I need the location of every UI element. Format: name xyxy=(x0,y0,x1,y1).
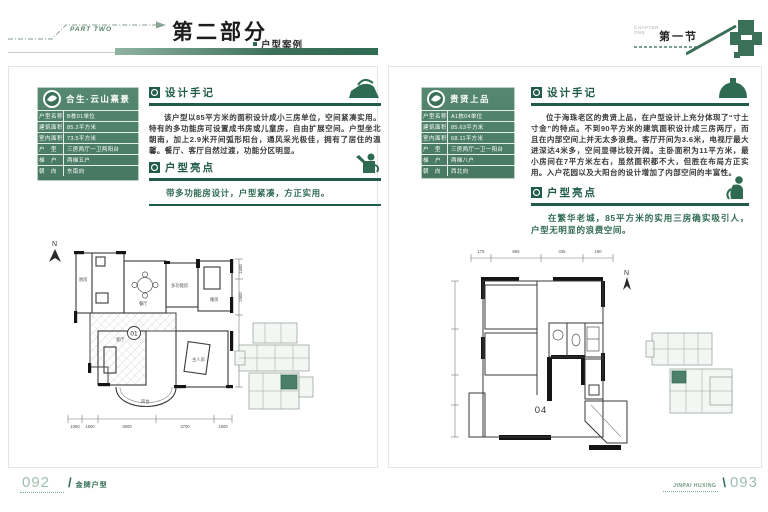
dimension-labels: 1050 1500 3600 3700 1500 xyxy=(70,424,228,429)
floor-plan-left: N xyxy=(46,235,246,431)
project-field-row: 户型名称 A1栋04单位 xyxy=(421,110,515,121)
unit-number: 04 xyxy=(535,405,548,416)
key-plan-highlight-unit xyxy=(672,371,686,383)
design-notes-text: 位于海珠老区的贵贤上品，在户型设计上充分体现了“寸土寸金”的特点。不到90平方米… xyxy=(531,112,749,178)
project-header: 贵贤上品 xyxy=(421,87,515,110)
room-label: 厨房 xyxy=(79,276,88,283)
design-notes-section: 设计手记 该户型以85平方米的面积设计成小三房单位，空间紧凑实用。特有的多功能房… xyxy=(149,85,381,156)
highlights-section: 户型亮点 在繁华老城，85平方米的实用三房确实吸引人，户型无明显的浪费空间。 xyxy=(531,185,749,236)
project-field-row: 朝 向 东南向 xyxy=(37,165,139,176)
footer-left: 092 / 金牌户型 xyxy=(20,474,108,493)
project-field-row: 户 型 三房两厅一卫一阳台 xyxy=(421,143,515,154)
dimension-labels: 175 855 335 190 xyxy=(477,249,602,254)
project-field-row: 建筑面积 85.63平方米 xyxy=(421,121,515,132)
room-label: 客厅 xyxy=(116,336,125,343)
project-name: 贵贤上品 xyxy=(450,93,490,105)
project-field-row: 建筑面积 85.2平方米 xyxy=(37,121,139,132)
left-page: 合生·云山熹景 户型名称 B栋01单位 建筑面积 85.2平方米 室内面积 73… xyxy=(8,66,378,468)
design-notes-title: 设计手记 xyxy=(165,85,215,100)
design-notes-text: 该户型以85平方米的面积设计成小三房单位，空间紧凑实用。特有的多功能房可设置成书… xyxy=(149,112,381,156)
project-field-row: 梯 户 两梯五户 xyxy=(37,154,139,165)
highlights-title: 户型亮点 xyxy=(165,160,215,175)
key-plan-left xyxy=(233,321,315,413)
room-label: 阳台 xyxy=(141,398,150,405)
highlights-title: 户型亮点 xyxy=(547,185,597,200)
house-icon xyxy=(686,14,762,58)
section-rule xyxy=(531,103,749,106)
highlights-text: 在繁华老城，85平方米的实用三房确实吸引人，户型无明显的浪费空间。 xyxy=(531,212,749,236)
svg-text:3700: 3700 xyxy=(180,424,190,429)
project-field-row: 室内面积 73.5平方米 xyxy=(37,132,139,143)
section-eyebrow: CHAPTER ONE xyxy=(634,25,659,35)
svg-text:3600: 3600 xyxy=(122,424,132,429)
page-number: 093 xyxy=(730,474,758,491)
svg-text:175: 175 xyxy=(477,249,485,254)
badge-icon xyxy=(149,162,160,173)
room-label: 餐厅 xyxy=(139,300,148,307)
svg-text:855: 855 xyxy=(512,249,520,254)
section-rule xyxy=(149,178,381,181)
footer-slash: / xyxy=(68,475,72,490)
unit-number: 01 xyxy=(130,331,138,338)
badge-icon xyxy=(531,187,542,198)
project-field-row: 室内面积 68.11平方米 xyxy=(421,132,515,143)
project-field-row: 户型名称 B栋01单位 xyxy=(37,110,139,121)
design-notes-section: 设计手记 位于海珠老区的贵贤上品，在户型设计上充分体现了“寸土寸金”的特点。不到… xyxy=(531,85,749,178)
page-number: 092 xyxy=(20,474,64,493)
svg-text:335: 335 xyxy=(558,249,566,254)
pot-icon xyxy=(717,76,749,100)
footer-slash: \ xyxy=(722,475,726,490)
compass-icon: N xyxy=(49,241,61,262)
right-page: 贵贤上品 户型名称 A1栋04单位 建筑面积 85.63平方米 室内面积 68.… xyxy=(388,66,762,468)
key-plan-right xyxy=(644,327,739,422)
compass-icon: N xyxy=(623,270,631,290)
svg-text:1500: 1500 xyxy=(85,424,95,429)
svg-text:N: N xyxy=(624,270,629,277)
svg-text:2600: 2600 xyxy=(238,292,243,302)
part-label: PART TWO xyxy=(70,26,112,33)
project-header: 合生·云山熹景 xyxy=(37,87,139,110)
watering-can-icon xyxy=(355,151,381,177)
section-rule xyxy=(531,203,749,206)
svg-text:1050: 1050 xyxy=(70,424,80,429)
header-green-bar xyxy=(115,48,378,55)
project-field-row: 户 型 三房两厅一卫两阳台 xyxy=(37,143,139,154)
figure-icon xyxy=(725,175,749,203)
footer-label: 金牌户型 xyxy=(76,480,108,490)
highlights-text: 带多功能房设计，户型紧凑，方正实用。 xyxy=(149,187,381,199)
room-label: 主人房 xyxy=(192,356,205,363)
svg-text:1500: 1500 xyxy=(218,424,228,429)
svg-text:N: N xyxy=(52,241,57,248)
svg-text:1500: 1500 xyxy=(238,264,243,274)
iron-icon xyxy=(347,77,381,101)
design-notes-title: 设计手记 xyxy=(547,85,597,100)
project-field-row: 朝 向 西北向 xyxy=(421,165,515,176)
project-info-box: 贵贤上品 户型名称 A1栋04单位 建筑面积 85.63平方米 室内面积 68.… xyxy=(421,87,515,179)
logo-icon xyxy=(425,88,447,110)
room-label: 睡房 xyxy=(210,296,219,303)
project-name: 合生·云山熹景 xyxy=(66,93,130,105)
badge-icon xyxy=(149,87,160,98)
svg-text:190: 190 xyxy=(594,249,602,254)
key-plan-highlight-unit xyxy=(281,375,297,389)
footer-label: JINPAI HUXING xyxy=(663,483,718,492)
floor-plan-right: 175 855 335 190 N xyxy=(441,245,646,455)
highlights-section: 户型亮点 带多功能房设计，户型紧凑，方正实用。 xyxy=(149,160,381,206)
square-bullet-icon xyxy=(253,42,257,46)
project-field-row: 梯 户 两梯八户 xyxy=(421,154,515,165)
room-label: 多功能房 xyxy=(171,282,188,289)
section-rule xyxy=(149,103,381,106)
badge-icon xyxy=(531,87,542,98)
logo-icon xyxy=(41,88,63,110)
footer-right: JINPAI HUXING \ 093 xyxy=(596,474,758,492)
section-rule xyxy=(149,204,381,206)
project-info-box: 合生·云山熹景 户型名称 B栋01单位 建筑面积 85.2平方米 室内面积 73… xyxy=(37,87,139,181)
